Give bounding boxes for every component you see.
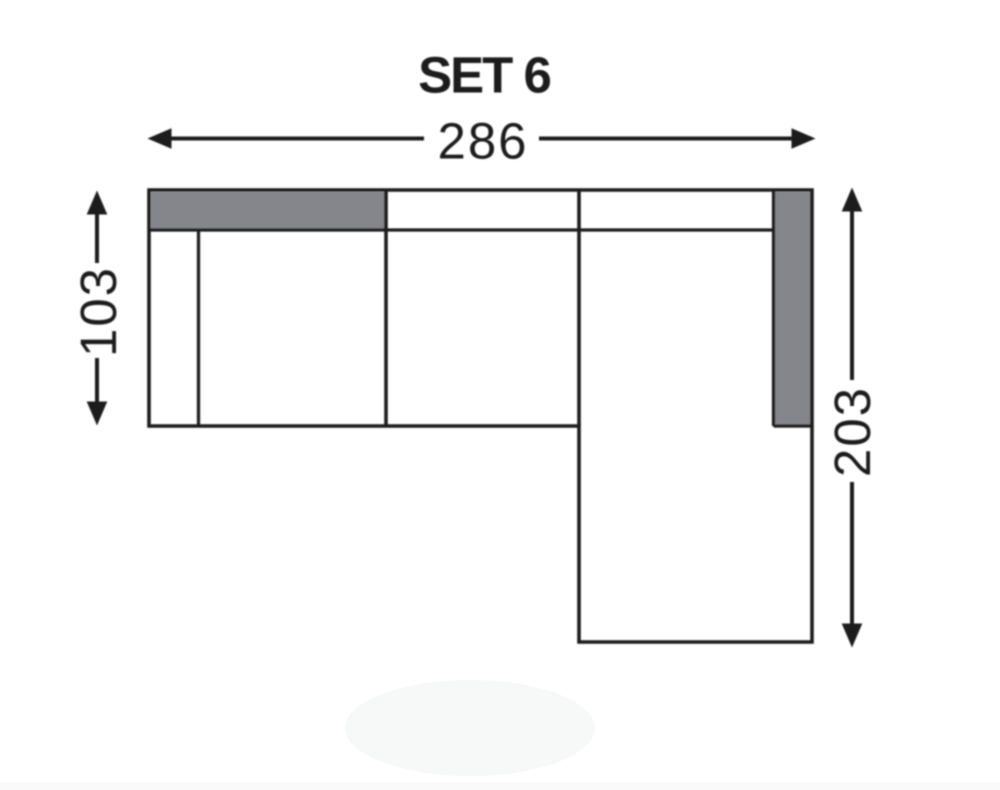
svg-text:SET 6: SET 6 bbox=[418, 47, 550, 104]
svg-text:103: 103 bbox=[70, 266, 127, 357]
svg-text:203: 203 bbox=[824, 386, 881, 477]
svg-text:286: 286 bbox=[437, 113, 528, 170]
